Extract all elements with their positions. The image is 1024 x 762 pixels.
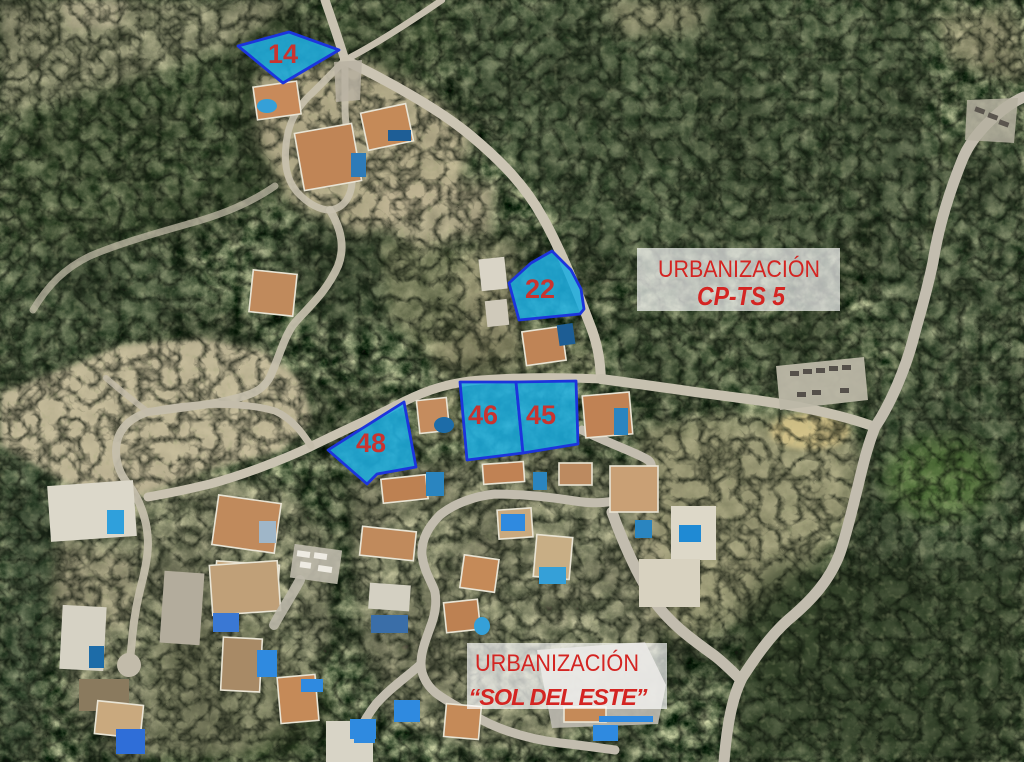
svg-text:14: 14 [268,39,298,69]
svg-text:URBANIZACIÓN: URBANIZACIÓN [475,650,639,677]
svg-text:“SOL DEL ESTE”: “SOL DEL ESTE” [469,684,648,710]
svg-text:CP-TS 5: CP-TS 5 [697,281,785,311]
svg-text:URBANIZACIÓN: URBANIZACIÓN [658,256,820,283]
svg-text:48: 48 [356,428,386,458]
svg-text:22: 22 [525,274,555,304]
svg-text:46: 46 [468,400,498,430]
svg-text:45: 45 [526,400,556,430]
